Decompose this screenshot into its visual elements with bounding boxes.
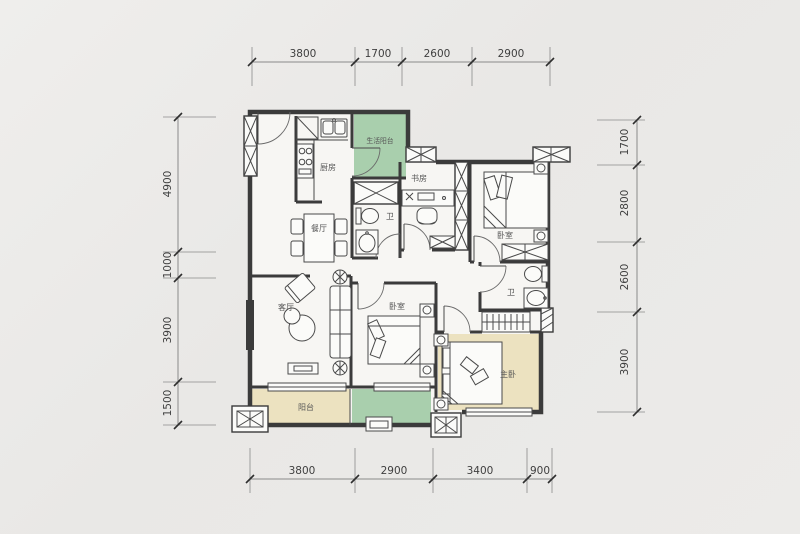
- duct-shaft-icon: [354, 182, 398, 204]
- dim-label: 2600: [424, 48, 451, 60]
- shaft-column-icon: [455, 162, 468, 250]
- column-icon: [431, 413, 461, 437]
- room-label-dining: 餐厅: [311, 224, 327, 233]
- dim-label: 3800: [290, 48, 317, 60]
- room-label-kitchen: 厨房: [320, 162, 336, 172]
- sliding-window-icon: [268, 383, 346, 391]
- dim-label: 2900: [498, 48, 525, 60]
- chair-icon: [417, 208, 437, 224]
- sliding-window-icon: [374, 383, 430, 391]
- dimension-right: 1700 2800 2600 3900: [597, 116, 645, 416]
- tv-stand-icon: [288, 363, 318, 374]
- room-label-study: 书房: [411, 173, 427, 183]
- wall-hatch-icon: [541, 308, 553, 332]
- life-balcony-area: [354, 114, 406, 177]
- window-bar-icon: [246, 300, 254, 350]
- room-label-living: 客厅: [278, 302, 294, 312]
- dim-label: 1000: [162, 252, 174, 279]
- room-label-life-balcony: 生活阳台: [366, 136, 393, 145]
- dim-label: 2800: [619, 190, 631, 217]
- dim-label: 1700: [365, 48, 392, 60]
- bed-icon: [484, 172, 548, 228]
- cabinet-icon: [430, 236, 455, 248]
- balcony-unit-icon: [366, 417, 392, 431]
- wardrobe-icon: [502, 244, 548, 260]
- dim-label: 4900: [162, 171, 174, 198]
- bed-icon: [442, 342, 502, 404]
- bathroom-sink-icon: [356, 230, 378, 254]
- dim-label: 2600: [619, 264, 631, 291]
- dim-label: 2900: [381, 465, 408, 477]
- floor-plan-canvas: 厨房 生活阳台 书房 卫 餐厅 卧室 客厅 卧室 卫 主卧 阳台 3800 17…: [0, 0, 800, 534]
- sliding-window-icon: [466, 408, 532, 416]
- bathroom-sink-icon: [524, 288, 548, 308]
- dim-label: 1700: [619, 129, 631, 156]
- dimension-left: 4900 1000 3900 1500: [162, 113, 216, 429]
- dim-label: 1500: [162, 390, 174, 417]
- dim-label: 3900: [162, 317, 174, 344]
- dimension-top: 3800 1700 2600 2900: [248, 47, 554, 86]
- bed-icon: [368, 316, 420, 364]
- stove-icon: [297, 144, 313, 178]
- column-icon: [406, 147, 436, 162]
- room-label-bedroom-mid: 卧室: [389, 301, 405, 311]
- kitchen-sink-icon: [321, 119, 347, 137]
- desk-icon: [402, 190, 454, 206]
- room-label-bath2: 卫: [507, 288, 515, 297]
- column-icon: [533, 147, 570, 162]
- room-label-balcony: 阳台: [298, 402, 314, 412]
- dimension-bottom: 3800 2900 3400 900: [246, 448, 556, 493]
- window-icon: [244, 116, 257, 176]
- toilet-icon: [525, 266, 549, 282]
- dim-label: 900: [530, 465, 550, 477]
- room-label-bath1: 卫: [386, 212, 394, 221]
- room-label-bedroom-ne: 卧室: [497, 230, 513, 240]
- floor-plan-page: 厨房 生活阳台 书房 卫 餐厅 卧室 客厅 卧室 卫 主卧 阳台 3800 17…: [0, 0, 800, 534]
- column-icon: [232, 406, 268, 432]
- hanger-wardrobe-icon: [482, 312, 530, 332]
- toilet-icon: [356, 208, 379, 224]
- dim-label: 3400: [467, 465, 494, 477]
- dim-label: 3900: [619, 349, 631, 376]
- dim-label: 3800: [289, 465, 316, 477]
- room-label-master: 主卧: [500, 369, 516, 379]
